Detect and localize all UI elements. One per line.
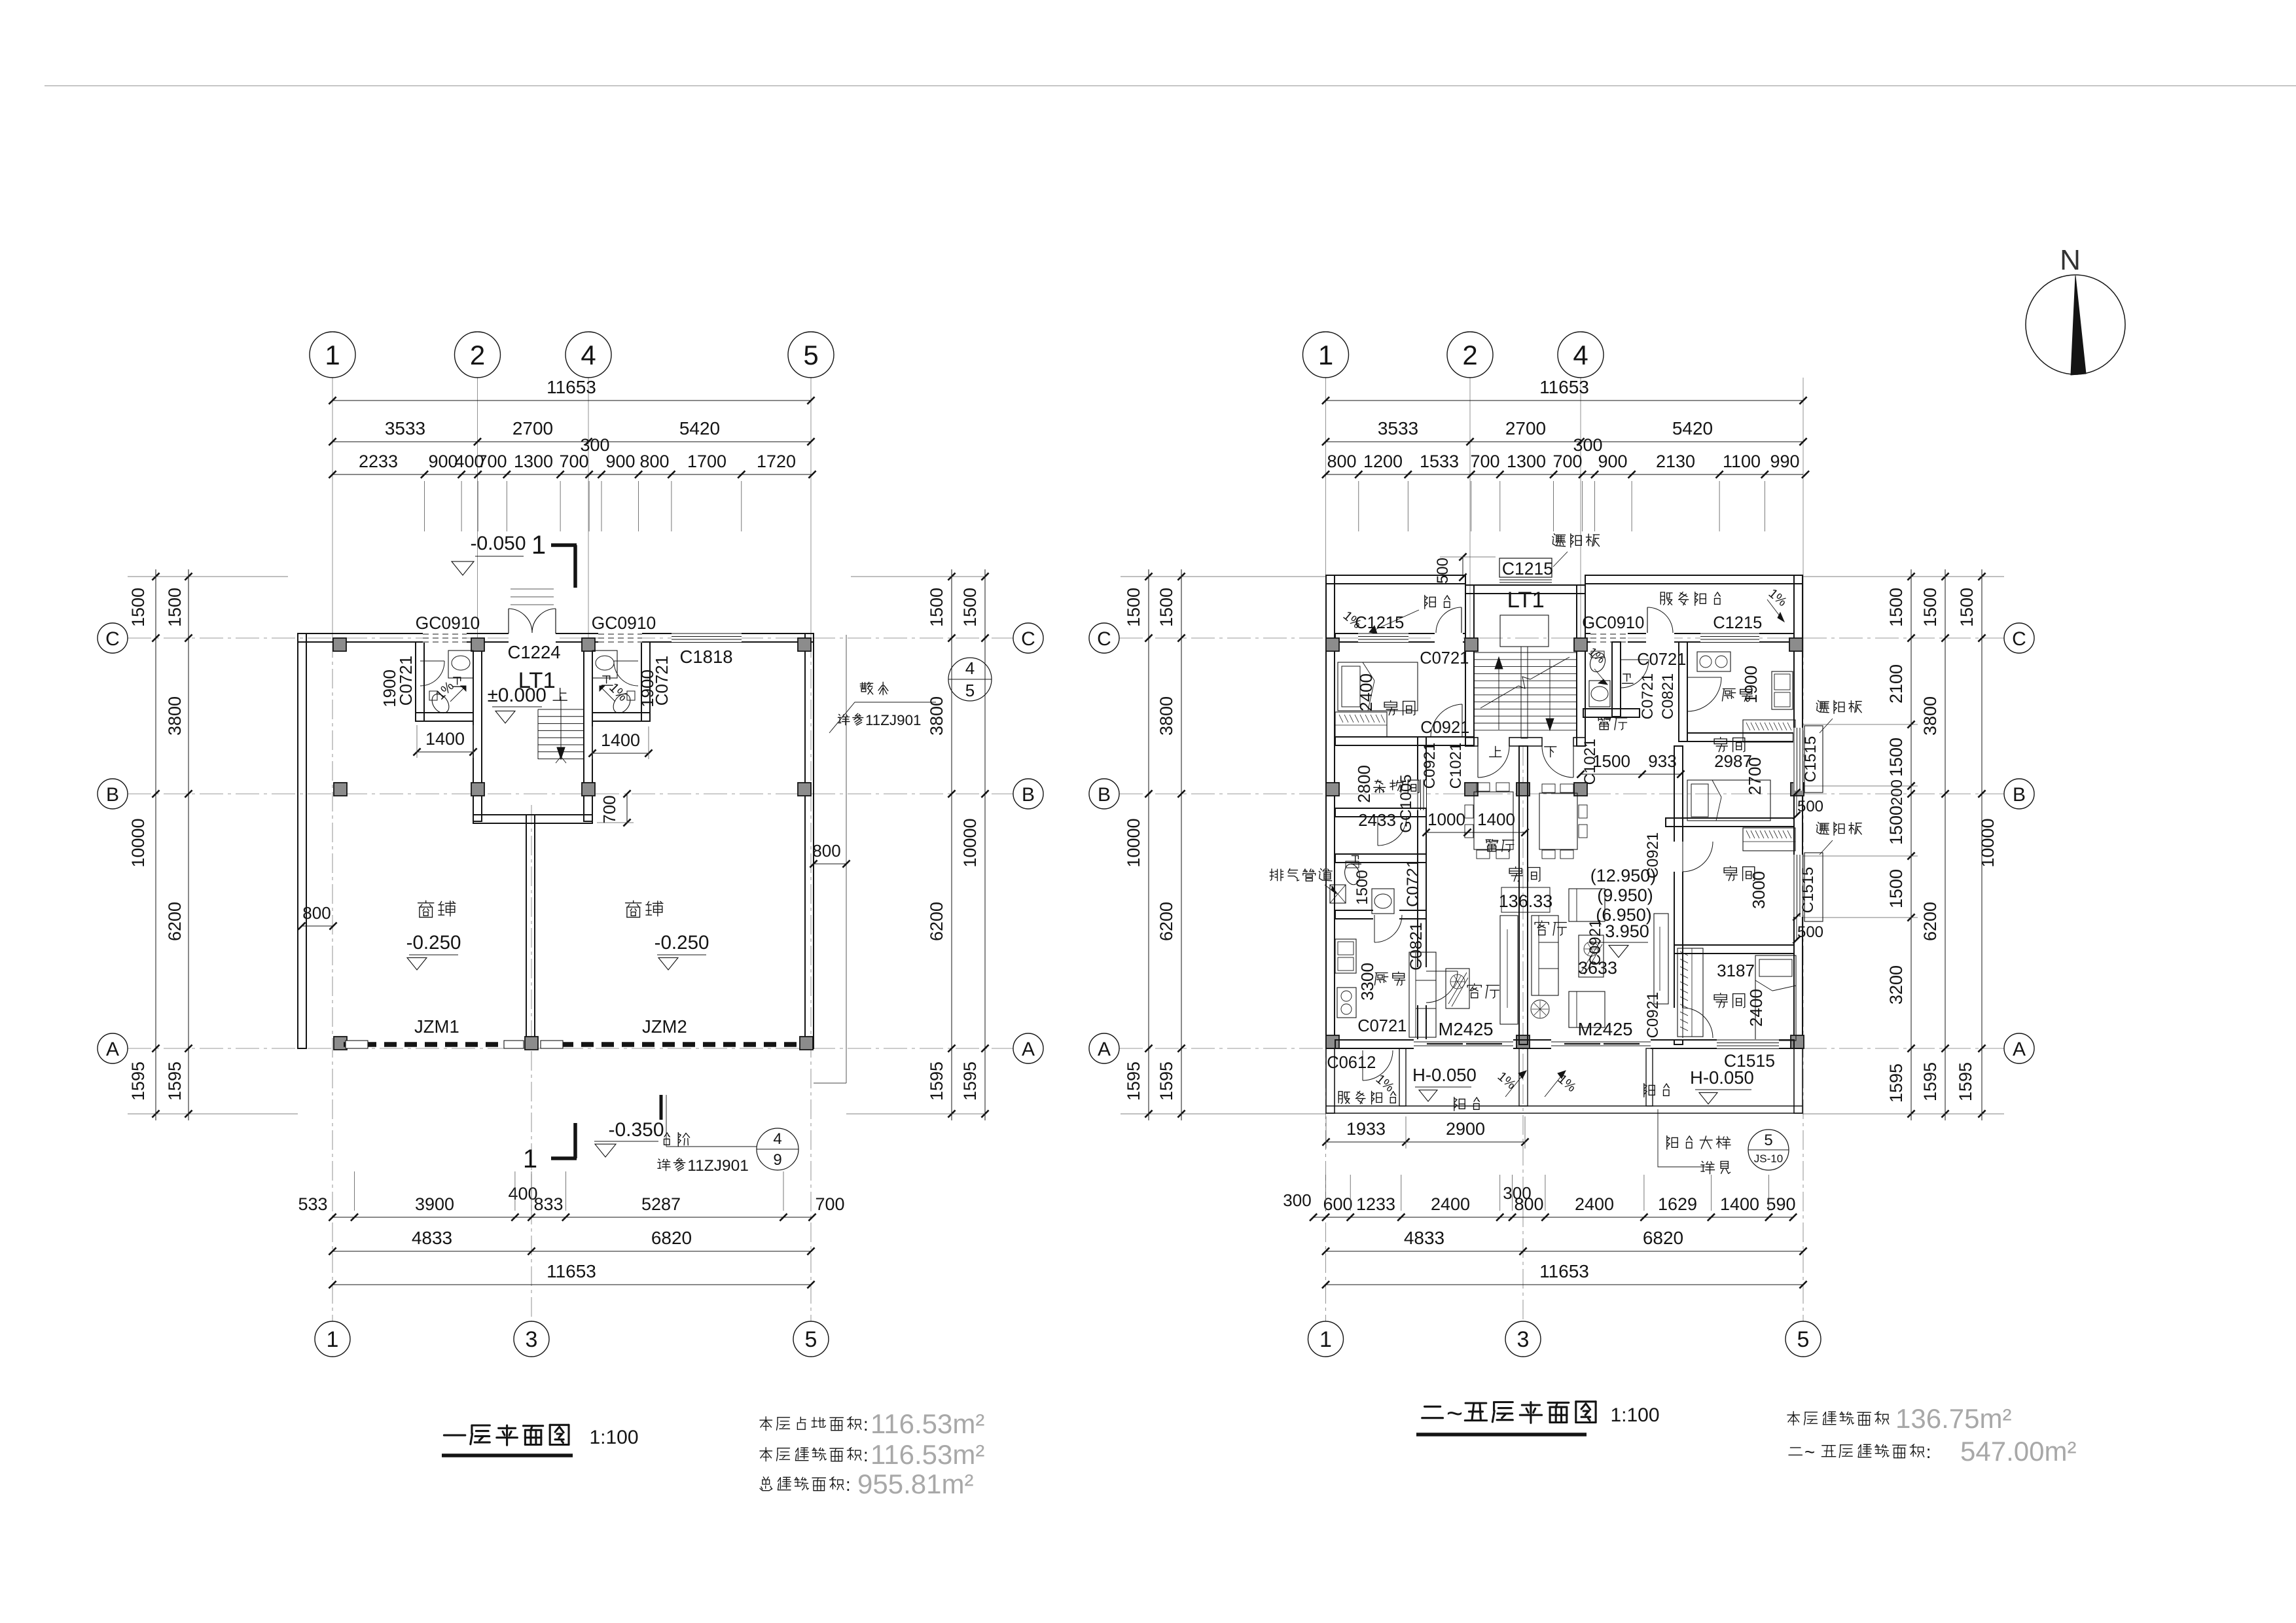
svg-text:300: 300 [1573, 435, 1602, 455]
svg-text:400: 400 [508, 1184, 537, 1204]
svg-text:1629: 1629 [1658, 1194, 1697, 1214]
svg-text:C1215: C1215 [1713, 614, 1762, 632]
svg-text:C0921: C0921 [1644, 992, 1662, 1039]
svg-text:3200: 3200 [1886, 965, 1906, 1005]
svg-text:2700: 2700 [1745, 757, 1765, 795]
svg-text:C1021: C1021 [1447, 743, 1465, 789]
svg-text:3.950: 3.950 [1605, 921, 1649, 941]
svg-text::: : [863, 1445, 869, 1465]
svg-text:500: 500 [1797, 798, 1823, 815]
svg-text:1900: 1900 [380, 669, 399, 707]
svg-text:4: 4 [965, 658, 975, 678]
svg-text:1900: 1900 [637, 669, 657, 707]
svg-text:11653: 11653 [547, 377, 596, 397]
svg-text:4833: 4833 [1404, 1228, 1444, 1248]
svg-text:5420: 5420 [679, 418, 720, 438]
svg-text:900: 900 [428, 452, 457, 471]
svg-text:C0721: C0721 [1639, 673, 1657, 720]
svg-text:A: A [106, 1039, 119, 1060]
svg-text:10000: 10000 [128, 818, 148, 867]
svg-text:1500: 1500 [1124, 588, 1143, 627]
svg-text:1400: 1400 [1477, 810, 1515, 829]
svg-text:136.33: 136.33 [1499, 891, 1553, 911]
svg-text:6200: 6200 [927, 902, 946, 941]
svg-text:C0721: C0721 [1404, 859, 1422, 907]
svg-text:700: 700 [477, 452, 507, 471]
svg-text:1500: 1500 [1920, 588, 1940, 627]
svg-text:C: C [105, 628, 120, 650]
svg-text:2130: 2130 [1656, 452, 1695, 471]
svg-text:GC0910: GC0910 [416, 613, 480, 633]
svg-text:1500: 1500 [128, 588, 148, 627]
svg-text:3000: 3000 [1749, 871, 1768, 909]
svg-text:C: C [2012, 628, 2026, 650]
svg-text:2900: 2900 [1446, 1119, 1485, 1139]
svg-text:3: 3 [526, 1327, 538, 1352]
svg-text:H-0.050: H-0.050 [1412, 1065, 1477, 1085]
svg-text:1400: 1400 [425, 729, 465, 749]
svg-text:1933: 1933 [1346, 1119, 1386, 1139]
svg-text:B: B [2013, 784, 2026, 806]
svg-text:1500: 1500 [1886, 869, 1906, 908]
svg-text:1500: 1500 [1957, 588, 1977, 627]
svg-text:1: 1 [327, 1327, 339, 1352]
svg-text:JS-10: JS-10 [1754, 1152, 1783, 1165]
svg-text:GC1005: GC1005 [1397, 774, 1415, 832]
svg-text:1700: 1700 [687, 452, 726, 471]
svg-text:1500: 1500 [1886, 738, 1906, 777]
svg-text:3900: 3900 [415, 1194, 454, 1214]
svg-text:GC0910: GC0910 [592, 613, 656, 633]
svg-text:1595: 1595 [1956, 1062, 1975, 1101]
svg-text:800: 800 [1514, 1194, 1543, 1214]
svg-text:1400: 1400 [1720, 1194, 1759, 1214]
svg-text:1533: 1533 [1420, 452, 1459, 471]
svg-text:10000: 10000 [1978, 818, 1998, 867]
svg-text:1500: 1500 [927, 588, 946, 627]
svg-text:116.53m²: 116.53m² [870, 1439, 984, 1470]
svg-text:136.75m²: 136.75m² [1895, 1403, 2011, 1434]
svg-text:833: 833 [533, 1194, 563, 1214]
svg-text:10000: 10000 [960, 818, 980, 867]
svg-text:1720: 1720 [757, 452, 796, 471]
svg-text:1595: 1595 [128, 1061, 148, 1101]
svg-text:JZM2: JZM2 [642, 1016, 687, 1037]
svg-text:2700: 2700 [512, 418, 553, 438]
svg-text:1595: 1595 [1124, 1061, 1143, 1101]
svg-text:C0921: C0921 [1420, 719, 1469, 737]
svg-text:1:100: 1:100 [589, 1427, 638, 1448]
svg-text:2400: 2400 [1575, 1194, 1614, 1214]
svg-text:3800: 3800 [165, 696, 185, 736]
svg-text:~: ~ [1446, 1398, 1463, 1429]
svg-text:C1515: C1515 [1799, 867, 1817, 914]
svg-text:2700: 2700 [1505, 418, 1546, 438]
svg-text:1500: 1500 [1886, 588, 1906, 627]
svg-text:1595: 1595 [960, 1061, 980, 1101]
svg-text:3300: 3300 [1357, 963, 1377, 1001]
svg-text:B: B [1022, 784, 1035, 806]
svg-text:~: ~ [1804, 1442, 1815, 1462]
svg-text:116.53m²: 116.53m² [870, 1408, 984, 1439]
svg-text:11653: 11653 [1539, 1261, 1589, 1281]
svg-text:500: 500 [1434, 558, 1452, 584]
svg-text:9: 9 [773, 1151, 781, 1169]
svg-text:3800: 3800 [1920, 696, 1940, 736]
svg-text:1500: 1500 [960, 588, 980, 627]
svg-text:5: 5 [1797, 1327, 1810, 1352]
svg-text:6200: 6200 [1920, 902, 1940, 941]
svg-text:1200: 1200 [1363, 452, 1403, 471]
svg-text:2: 2 [470, 340, 485, 370]
svg-text:3533: 3533 [1378, 418, 1418, 438]
svg-text:1: 1 [325, 340, 340, 370]
svg-text:300: 300 [1283, 1190, 1311, 1210]
svg-text:1500: 1500 [1886, 806, 1906, 845]
svg-text:547.00m²: 547.00m² [1960, 1436, 2076, 1467]
svg-text:1: 1 [531, 531, 546, 560]
svg-text:200: 200 [1888, 779, 1906, 806]
svg-text:1000: 1000 [1427, 810, 1465, 829]
svg-text:800: 800 [639, 452, 669, 471]
svg-text:2100: 2100 [1886, 664, 1906, 704]
svg-text:1: 1 [523, 1145, 537, 1173]
svg-text:C0921: C0921 [1421, 743, 1439, 789]
svg-text:11653: 11653 [547, 1261, 596, 1281]
svg-text:6820: 6820 [651, 1228, 692, 1248]
svg-text:11ZJ901: 11ZJ901 [865, 712, 921, 728]
svg-text:300: 300 [580, 435, 609, 455]
svg-text:2400: 2400 [1746, 989, 1766, 1027]
svg-text:1:100: 1:100 [1610, 1404, 1659, 1426]
svg-text:5287: 5287 [641, 1194, 681, 1214]
svg-text:11653: 11653 [1539, 377, 1589, 397]
svg-text:600: 600 [1323, 1194, 1352, 1214]
svg-text:1233: 1233 [1356, 1194, 1395, 1214]
svg-text:3: 3 [1517, 1327, 1530, 1352]
svg-text:C1215: C1215 [1502, 559, 1553, 579]
svg-text:C0921: C0921 [1644, 832, 1662, 879]
svg-text:C1224: C1224 [508, 642, 561, 662]
svg-text:JZM1: JZM1 [414, 1016, 459, 1037]
svg-text:800: 800 [302, 903, 331, 923]
svg-text:11ZJ901: 11ZJ901 [687, 1157, 749, 1175]
svg-text:-0.250: -0.250 [406, 932, 461, 954]
svg-text:C0921: C0921 [1587, 919, 1604, 966]
svg-text:A: A [1022, 1039, 1035, 1060]
svg-text:4: 4 [773, 1130, 781, 1148]
svg-text:533: 533 [298, 1194, 327, 1214]
svg-text:5: 5 [803, 340, 818, 370]
svg-text:C0721: C0721 [1357, 1017, 1407, 1035]
svg-text:1500: 1500 [165, 588, 185, 627]
svg-text:1500: 1500 [1157, 588, 1176, 627]
svg-text:1100: 1100 [1723, 452, 1761, 471]
svg-text:1900: 1900 [1741, 666, 1761, 704]
svg-text:3533: 3533 [385, 418, 425, 438]
svg-text:500: 500 [1797, 923, 1823, 941]
svg-text:5420: 5420 [1672, 418, 1713, 438]
svg-text:4: 4 [1573, 340, 1588, 370]
svg-text:(9.950): (9.950) [1597, 885, 1653, 905]
svg-text:700: 700 [815, 1194, 844, 1214]
svg-text:3187: 3187 [1717, 961, 1755, 980]
svg-text:±0.000: ±0.000 [488, 685, 547, 706]
svg-text:700: 700 [600, 795, 619, 823]
svg-text:H-0.050: H-0.050 [1690, 1067, 1754, 1088]
svg-text:5: 5 [1764, 1132, 1772, 1149]
svg-text:M2425: M2425 [1578, 1019, 1633, 1039]
svg-text:1595: 1595 [1886, 1063, 1906, 1103]
svg-text:1: 1 [1318, 340, 1333, 370]
svg-text:6200: 6200 [165, 902, 185, 941]
svg-text:1595: 1595 [165, 1061, 185, 1101]
svg-text:-0.050: -0.050 [470, 533, 526, 554]
svg-text::: : [1926, 1442, 1931, 1462]
svg-text:LT1: LT1 [1507, 588, 1545, 613]
svg-text:933: 933 [1648, 751, 1676, 771]
svg-text:C1818: C1818 [680, 647, 733, 667]
svg-text:C0821: C0821 [1659, 673, 1677, 720]
svg-text:C1215: C1215 [1355, 614, 1404, 632]
svg-text:C1021: C1021 [1581, 739, 1599, 785]
svg-text:1595: 1595 [1157, 1061, 1176, 1101]
svg-text::: : [846, 1474, 851, 1495]
svg-text:N: N [2060, 244, 2081, 276]
svg-text:C0721: C0721 [1420, 649, 1469, 668]
svg-text:800: 800 [812, 841, 840, 861]
svg-text:990: 990 [1770, 452, 1799, 471]
svg-text::: : [863, 1414, 869, 1435]
svg-text:590: 590 [1766, 1194, 1795, 1214]
svg-text:1: 1 [1319, 1327, 1332, 1352]
svg-text:1595: 1595 [1920, 1062, 1940, 1101]
svg-text:-0.350: -0.350 [608, 1119, 664, 1141]
svg-text:700: 700 [1470, 452, 1499, 471]
svg-text:6820: 6820 [1643, 1228, 1683, 1248]
svg-text:2433: 2433 [1358, 810, 1396, 830]
svg-text:C0821: C0821 [1407, 922, 1426, 971]
svg-text:B: B [106, 784, 119, 806]
svg-text:800: 800 [1327, 452, 1356, 471]
svg-text:1300: 1300 [514, 452, 553, 471]
svg-text:1595: 1595 [927, 1061, 946, 1101]
svg-text:3800: 3800 [1157, 696, 1176, 736]
svg-text:2800: 2800 [1354, 765, 1374, 803]
svg-text:955.81m²: 955.81m² [857, 1469, 973, 1499]
svg-text:A: A [2013, 1039, 2026, 1060]
svg-text:1300: 1300 [1507, 452, 1546, 471]
svg-text:GC0910: GC0910 [1582, 614, 1644, 632]
svg-text:900: 900 [605, 452, 635, 471]
svg-text:B: B [1098, 784, 1111, 806]
svg-text:4833: 4833 [412, 1228, 452, 1248]
svg-text:2: 2 [1462, 340, 1477, 370]
svg-text:-0.250: -0.250 [655, 932, 709, 954]
svg-text:5: 5 [805, 1327, 817, 1352]
svg-text:1400: 1400 [601, 730, 640, 750]
svg-text:6200: 6200 [1157, 902, 1176, 941]
svg-text:C: C [1097, 628, 1111, 650]
svg-text:C: C [1021, 628, 1035, 650]
svg-text:M2425: M2425 [1439, 1019, 1494, 1039]
svg-text:5: 5 [965, 681, 975, 700]
svg-text:4: 4 [581, 340, 596, 370]
svg-text:2233: 2233 [359, 452, 398, 471]
svg-text:1500: 1500 [1354, 870, 1371, 904]
svg-text:A: A [1098, 1039, 1111, 1060]
svg-text:2400: 2400 [1431, 1194, 1470, 1214]
svg-text:2400: 2400 [1356, 673, 1376, 711]
svg-text:10000: 10000 [1124, 818, 1143, 867]
